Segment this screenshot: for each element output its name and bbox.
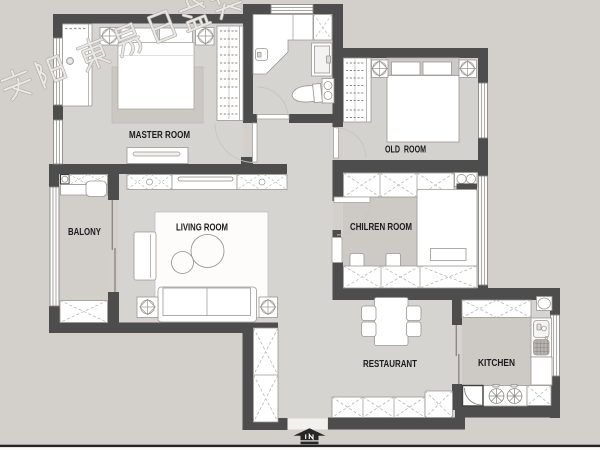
svg-text:RESTAURANT: RESTAURANT — [363, 359, 418, 370]
svg-text:MASTER ROOM: MASTER ROOM — [129, 130, 190, 141]
svg-text:OLD ROOM: OLD ROOM — [385, 145, 426, 156]
svg-text:LIVING ROOM: LIVING ROOM — [176, 223, 228, 234]
svg-text:KITCHEN: KITCHEN — [478, 358, 515, 369]
svg-text:CHILREN ROOM: CHILREN ROOM — [350, 222, 412, 233]
svg-text:BALONY: BALONY — [68, 227, 101, 238]
